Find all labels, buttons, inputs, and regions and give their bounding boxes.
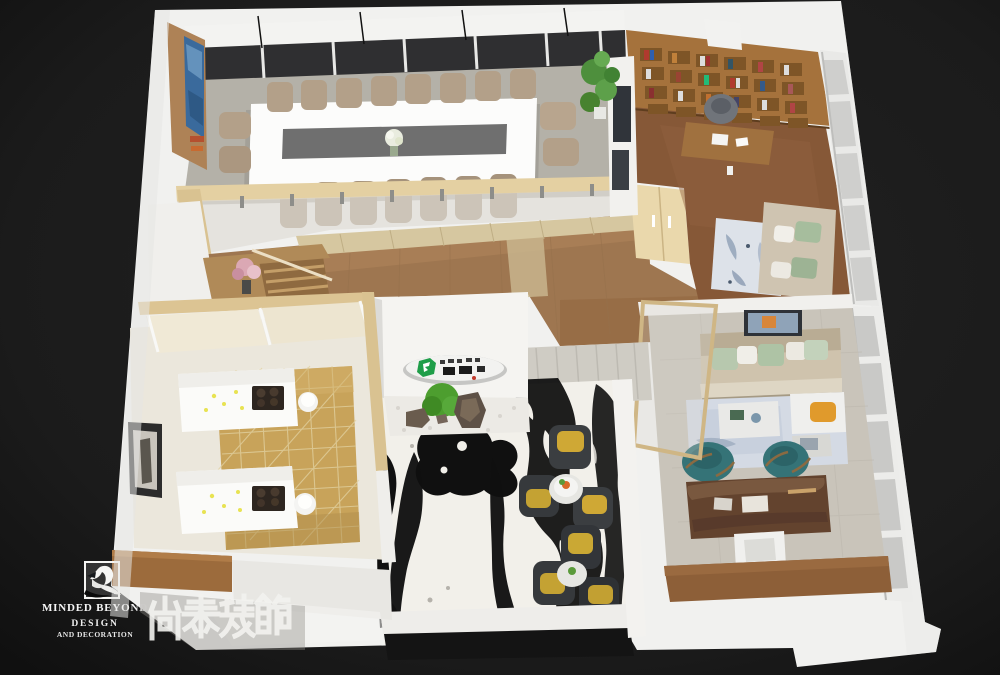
- svg-text:DESIGN: DESIGN: [71, 619, 118, 629]
- svg-text:MINDED BEYOND: MINDED BEYOND: [42, 602, 148, 614]
- svg-text:AND DECORATION: AND DECORATION: [57, 630, 133, 639]
